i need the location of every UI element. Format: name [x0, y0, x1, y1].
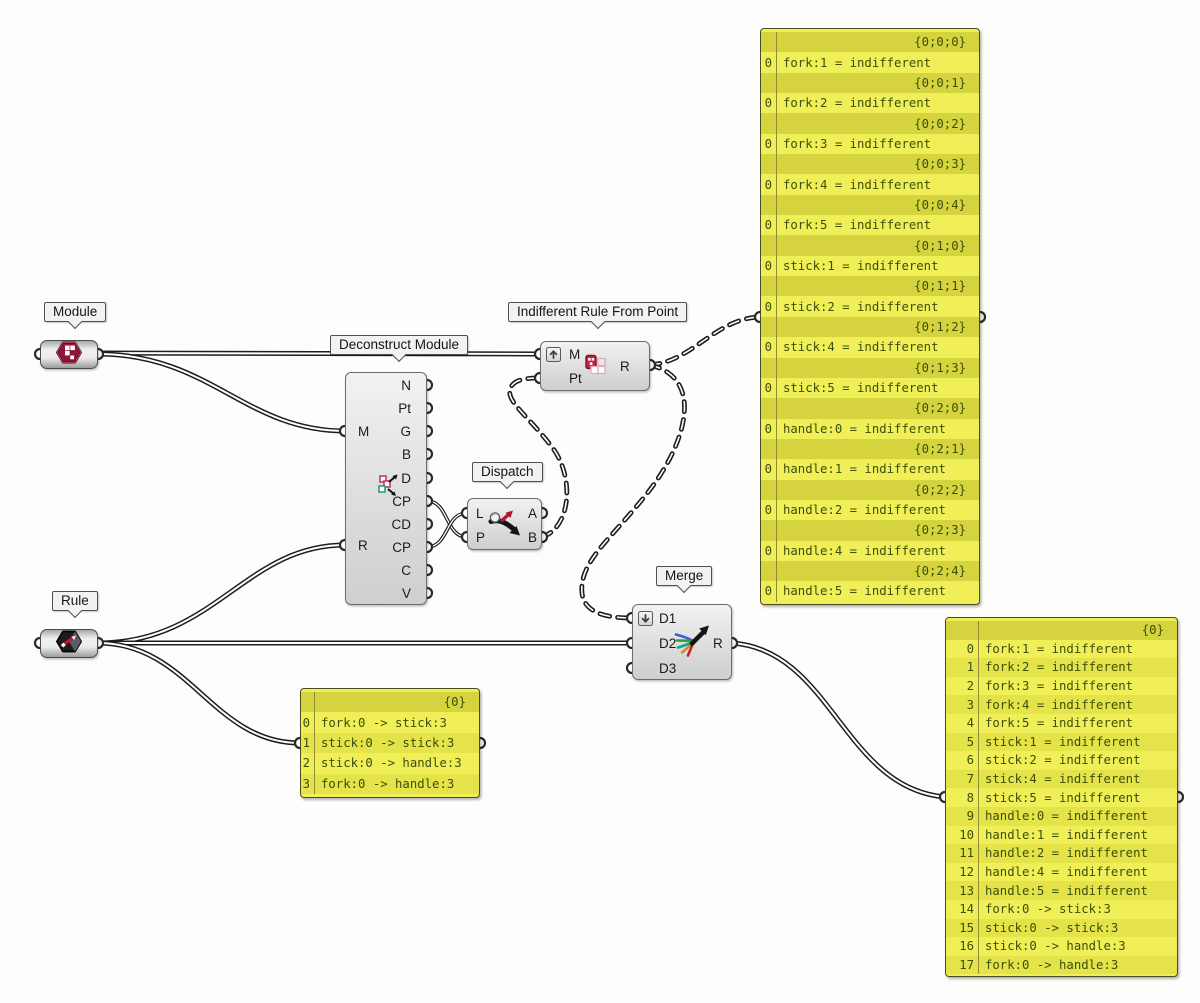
- panel-row: 14 fork:0 -> stick:3: [946, 900, 1177, 919]
- panel-row: 0 fork:5 = indifferent: [761, 215, 979, 235]
- irfp-icon: [584, 349, 610, 388]
- input-label-pt: Pt: [569, 372, 582, 386]
- panel-row: {0;0;4}: [761, 195, 979, 215]
- panel-rules-explicit[interactable]: {0} 0 fork:0 -> stick:3 1 stick:0 -> sti…: [300, 688, 480, 798]
- output-label-r: R: [713, 637, 723, 651]
- tag-irfp: Indifferent Rule From Point: [508, 302, 687, 322]
- rule-hexagon-icon: [56, 629, 83, 658]
- panel-row: {0;2;2}: [761, 480, 979, 500]
- panel-row: 4 fork:5 = indifferent: [946, 714, 1177, 733]
- dispatch-icon: [487, 509, 523, 544]
- panel-row: 0 handle:2 = indifferent: [761, 500, 979, 520]
- panel-row: 0 handle:0 = indifferent: [761, 419, 979, 439]
- input-label-l: L: [476, 507, 484, 521]
- panel-row: 0 stick:5 = indifferent: [761, 378, 979, 398]
- deconstruct-module-component[interactable]: M R N Pt G B D CP CD CP C V: [345, 372, 427, 605]
- output-label-cp2: CP: [392, 541, 411, 555]
- panel-row: 6 stick:2 = indifferent: [946, 751, 1177, 770]
- graft-toggle[interactable]: [546, 347, 561, 362]
- output-label-c: C: [401, 564, 411, 578]
- panel-row: 0 fork:0 -> stick:3: [301, 712, 479, 732]
- panel-row: 8 stick:5 = indifferent: [946, 788, 1177, 807]
- panel-row: {0;1;0}: [761, 235, 979, 255]
- panel-row: 16 stick:0 -> handle:3: [946, 937, 1177, 956]
- panel-row: 0 fork:1 = indifferent: [946, 640, 1177, 659]
- panel-row: {0;1;3}: [761, 358, 979, 378]
- panel-row: 13 handle:5 = indifferent: [946, 881, 1177, 900]
- panel-row: 15 stick:0 -> stick:3: [946, 919, 1177, 938]
- panel-row: 0 handle:4 = indifferent: [761, 541, 979, 561]
- output-label-pt: Pt: [398, 402, 411, 416]
- panel-row: 1 stick:0 -> stick:3: [301, 733, 479, 753]
- tag-rule: Rule: [52, 591, 98, 611]
- panel-row: {0}: [301, 692, 479, 712]
- flatten-toggle[interactable]: [638, 611, 653, 626]
- panel-rules-merged[interactable]: {0} 0 fork:1 = indifferent 1 fork:2 = in…: [945, 617, 1178, 977]
- panel-rules-tree[interactable]: {0;0;0} 0 fork:1 = indifferent {0;0;1} 0…: [760, 28, 980, 605]
- tag-dispatch: Dispatch: [472, 462, 543, 482]
- panel-row: 0 fork:4 = indifferent: [761, 174, 979, 194]
- panel-row: 7 stick:4 = indifferent: [946, 770, 1177, 789]
- panel-row: {0}: [946, 621, 1177, 640]
- wire-merge-r-to-panel-merged[interactable]: [732, 643, 945, 797]
- panel-row: 2 fork:3 = indifferent: [946, 677, 1177, 696]
- rule-param[interactable]: [40, 629, 98, 658]
- panel-row: 5 stick:1 = indifferent: [946, 733, 1177, 752]
- panel-row: 0 stick:2 = indifferent: [761, 296, 979, 316]
- output-label-b: B: [528, 531, 537, 545]
- input-label-d3: D3: [659, 662, 676, 676]
- grasshopper-canvas[interactable]: Module Rule Deconstruct Module Indiffere…: [0, 0, 1200, 1003]
- output-label-a: A: [528, 507, 537, 521]
- output-label-r: R: [620, 360, 630, 374]
- flatten-down-arrow-icon: [640, 613, 651, 624]
- module-param[interactable]: [40, 340, 98, 369]
- wire-irfp-r-to-panel-tree[interactable]: [650, 317, 760, 365]
- irfp-component[interactable]: M Pt R: [540, 341, 650, 391]
- panel-row: {0;2;0}: [761, 398, 979, 418]
- wire-module-to-deconstruct-m[interactable]: [98, 354, 345, 431]
- input-label-m: M: [569, 348, 580, 362]
- panel-row: {0;0;3}: [761, 154, 979, 174]
- panel-row: {0;1;1}: [761, 276, 979, 296]
- output-label-d: D: [401, 472, 411, 486]
- panel-row: 3 fork:0 -> handle:3: [301, 774, 479, 794]
- panel-row: {0;0;1}: [761, 73, 979, 93]
- panel-row: 3 fork:4 = indifferent: [946, 695, 1177, 714]
- panel-row: {0;2;3}: [761, 520, 979, 540]
- dispatch-component[interactable]: L P A B: [467, 498, 542, 550]
- wire-rule-to-deconstruct-r[interactable]: [98, 545, 345, 643]
- panel-row: 0 handle:1 = indifferent: [761, 459, 979, 479]
- panel-row: 1 fork:2 = indifferent: [946, 658, 1177, 677]
- output-label-v: V: [402, 587, 411, 601]
- input-label-m: M: [358, 425, 369, 439]
- panel-row: 9 handle:0 = indifferent: [946, 807, 1177, 826]
- panel-row: 0 fork:3 = indifferent: [761, 134, 979, 154]
- tag-deconstruct: Deconstruct Module: [330, 335, 468, 355]
- input-label-p: P: [476, 531, 485, 545]
- output-label-g: G: [400, 425, 411, 439]
- merge-component[interactable]: D1 D2 D3 R: [632, 604, 732, 680]
- input-label-r: R: [358, 539, 368, 553]
- panel-row: {0;2;4}: [761, 561, 979, 581]
- wire-rule-to-panel-explicit[interactable]: [98, 643, 300, 743]
- module-hexagon-icon: [56, 340, 83, 369]
- panel-row: 17 fork:0 -> handle:3: [946, 956, 1177, 975]
- panel-row: {0;1;2}: [761, 317, 979, 337]
- output-label-n: N: [401, 379, 411, 393]
- panel-row: {0;2;1}: [761, 439, 979, 459]
- tag-merge: Merge: [656, 566, 712, 586]
- merge-icon: [672, 623, 714, 664]
- tag-module: Module: [44, 302, 106, 322]
- panel-row: 10 handle:1 = indifferent: [946, 826, 1177, 845]
- panel-row: 0 stick:1 = indifferent: [761, 256, 979, 276]
- wire-module-to-irfp-m[interactable]: [98, 353, 540, 354]
- panel-row: 0 fork:1 = indifferent: [761, 52, 979, 72]
- panel-row: 12 handle:4 = indifferent: [946, 863, 1177, 882]
- output-label-b: B: [402, 448, 411, 462]
- panel-row: 0 handle:5 = indifferent: [761, 581, 979, 601]
- panel-row: {0;0;2}: [761, 113, 979, 133]
- panel-row: 2 stick:0 -> handle:3: [301, 753, 479, 773]
- panel-row: 0 stick:4 = indifferent: [761, 337, 979, 357]
- deconstruct-module-icon: [372, 473, 400, 505]
- panel-row: {0;0;0}: [761, 32, 979, 52]
- panel-row: 0 fork:2 = indifferent: [761, 93, 979, 113]
- graft-up-arrow-icon: [548, 349, 559, 360]
- panel-row: 11 handle:2 = indifferent: [946, 844, 1177, 863]
- output-label-cd: CD: [392, 518, 412, 532]
